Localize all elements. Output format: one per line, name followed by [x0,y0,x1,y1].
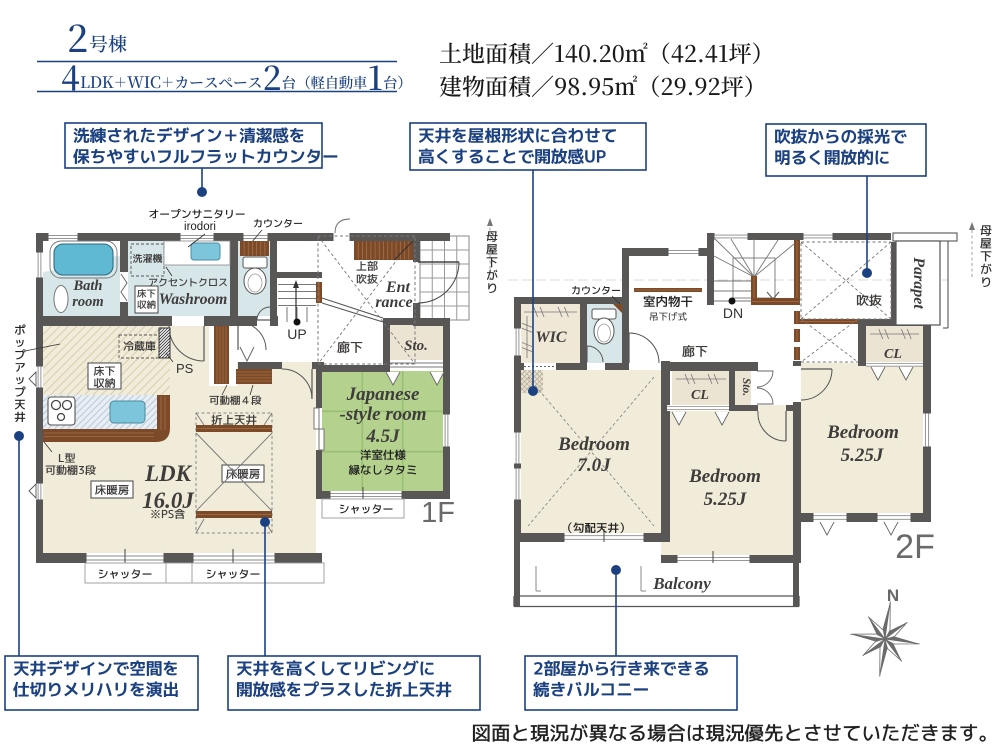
svg-text:1F: 1F [421,497,455,529]
svg-text:Balcony: Balcony [652,574,711,593]
svg-text:CL: CL [691,388,709,403]
svg-text:Bedroom: Bedroom [826,422,899,443]
svg-text:16.0J: 16.0J [142,488,195,513]
svg-text:DN: DN [723,305,743,321]
svg-text:N: N [887,586,899,605]
svg-text:7.0J: 7.0J [577,455,611,476]
svg-text:CL: CL [884,347,902,362]
svg-text:5.25J: 5.25J [841,445,884,466]
svg-text:WIC: WIC [535,329,566,346]
svg-text:-style room: -style room [339,404,426,425]
svg-text:room: room [72,294,103,310]
svg-text:Parapet: Parapet [910,256,927,309]
svg-text:UP: UP [287,326,306,342]
svg-text:Washroom: Washroom [159,291,228,308]
svg-text:Sto.: Sto. [740,378,752,396]
svg-text:Japanese: Japanese [346,384,420,405]
svg-text:2F: 2F [895,528,935,566]
svg-text:Bedroom: Bedroom [557,434,630,455]
svg-text:rance: rance [375,294,412,311]
svg-text:5.25J: 5.25J [704,489,747,510]
svg-text:Bath: Bath [72,278,102,294]
svg-text:4.5J: 4.5J [365,426,400,447]
svg-text:PS: PS [176,361,194,376]
svg-text:Bedroom: Bedroom [688,466,761,487]
svg-text:irodori: irodori [184,221,216,233]
svg-text:Sto.: Sto. [404,338,428,354]
svg-text:LDK: LDK [144,461,193,486]
